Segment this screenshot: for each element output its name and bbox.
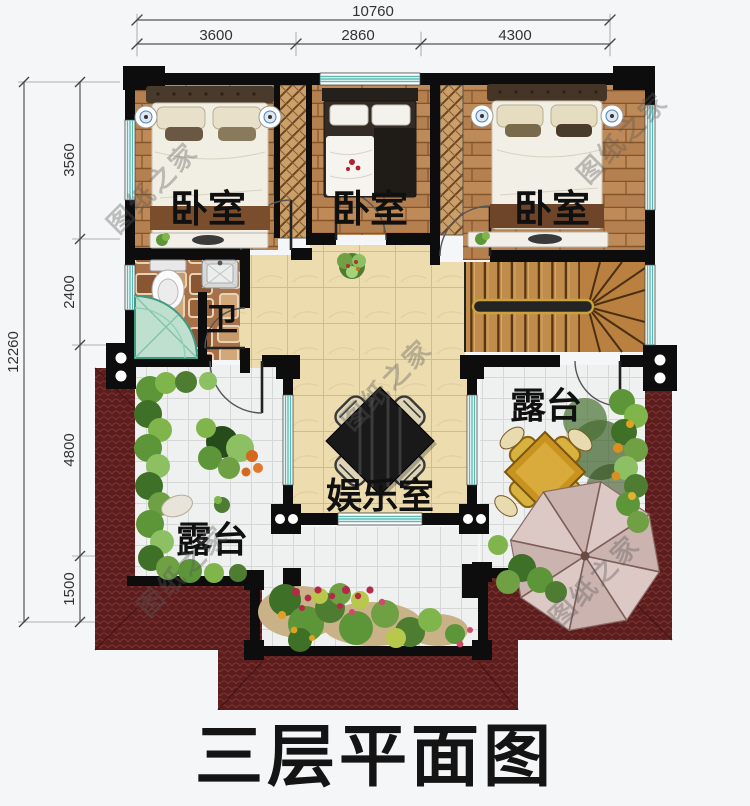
window-stairs <box>645 265 655 345</box>
window-bathroom <box>125 265 135 310</box>
dim-left-seg2: 2400 <box>61 275 78 308</box>
window-bedroom-middle-top <box>320 73 420 85</box>
dim-left-total: 12260 <box>5 331 22 373</box>
dim-left-seg3: 4800 <box>61 433 78 466</box>
dim-top-seg2: 2860 <box>341 27 374 44</box>
wardrobe-left <box>278 85 310 238</box>
dim-left-seg4: 1500 <box>61 572 78 605</box>
dim-top-seg3: 4300 <box>498 27 531 44</box>
floor-plan-drawing: 10760 3600 2860 4300 12260 3560 2400 480… <box>0 0 750 710</box>
dresser-right <box>468 232 608 247</box>
page-title: 三层平面图 <box>0 712 750 802</box>
label-bathroom: 卫 <box>206 301 238 337</box>
wardrobe-right <box>440 85 463 235</box>
stair-handrail <box>473 300 593 313</box>
label-terrace-right: 露台 <box>510 385 582 426</box>
dimension-top: 10760 3600 2860 4300 <box>132 3 615 56</box>
dresser-left <box>150 233 268 248</box>
dim-top-total: 10760 <box>352 3 394 20</box>
sink <box>202 260 238 288</box>
label-bedroom-middle: 卧室 <box>332 188 408 231</box>
floor-plan-page: 10760 3600 2860 4300 12260 3560 2400 480… <box>0 0 750 806</box>
label-entertainment: 娱乐室 <box>326 475 434 516</box>
dim-left-seg1: 3560 <box>61 143 78 176</box>
dim-top-seg1: 3600 <box>199 27 232 44</box>
bed-middle <box>322 88 418 197</box>
label-bedroom-right: 卧室 <box>514 188 590 231</box>
window-entertainment-left <box>283 395 293 485</box>
label-bedroom-left: 卧室 <box>170 188 246 231</box>
window-entertainment-right <box>467 395 477 485</box>
